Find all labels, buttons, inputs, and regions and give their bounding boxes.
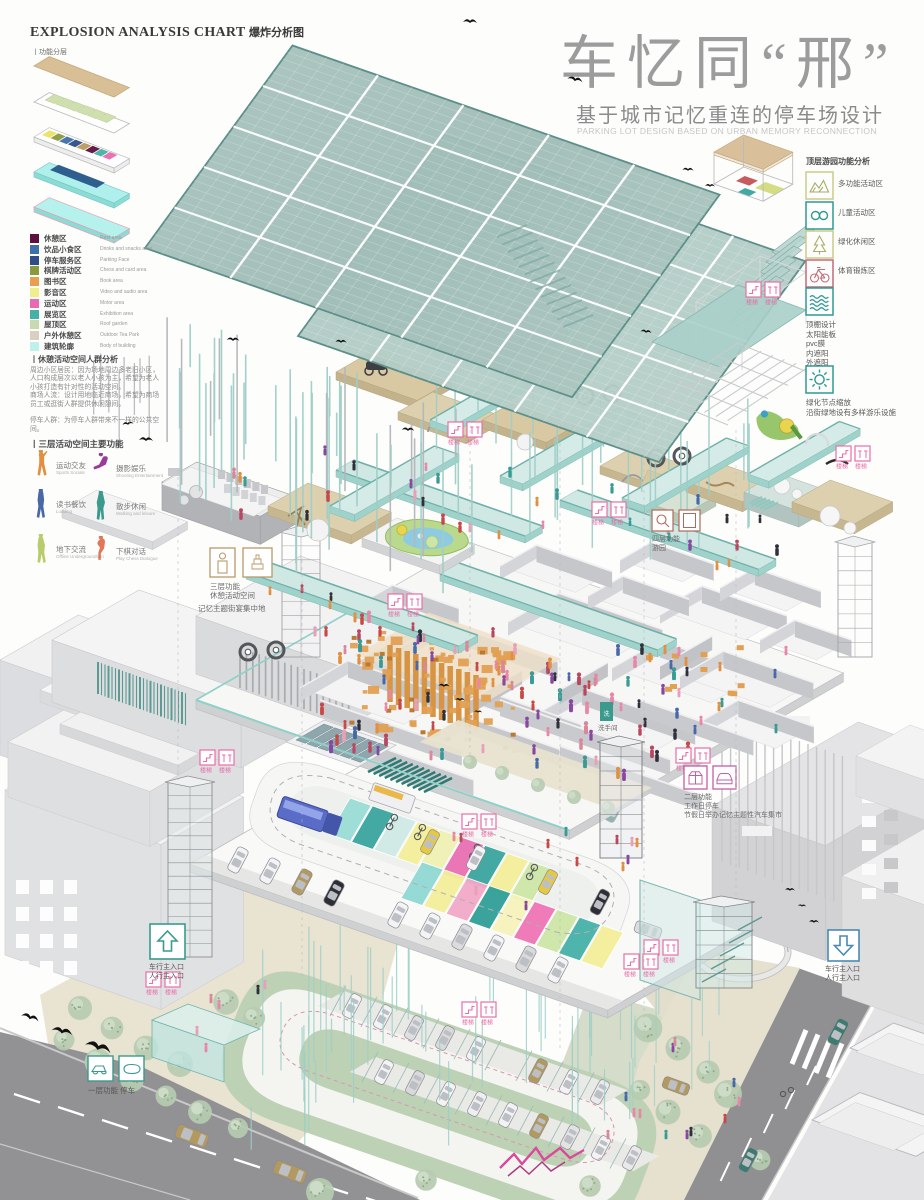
svg-text:楼梯: 楼梯: [200, 767, 212, 775]
svg-text:楼梯: 楼梯: [462, 1019, 474, 1027]
svg-text:楼梯: 楼梯: [855, 463, 867, 471]
svg-text:洗手间: 洗手间: [598, 723, 618, 732]
svg-text:二层功能: 二层功能: [684, 792, 712, 801]
svg-text:三层功能: 三层功能: [210, 581, 240, 591]
svg-text:楼梯: 楼梯: [663, 957, 675, 965]
svg-text:工作日停车: 工作日停车: [684, 801, 719, 810]
svg-text:人行主入口: 人行主入口: [149, 971, 184, 980]
svg-text:楼梯: 楼梯: [836, 463, 848, 471]
svg-text:楼梯: 楼梯: [165, 989, 177, 997]
svg-text:楼梯: 楼梯: [765, 299, 777, 307]
svg-text:游园: 游园: [652, 543, 666, 552]
svg-text:洗: 洗: [603, 710, 609, 718]
svg-text:楼梯: 楼梯: [467, 439, 479, 447]
svg-text:四层功能: 四层功能: [652, 534, 680, 543]
svg-text:休憩活动空间: 休憩活动空间: [210, 590, 255, 600]
svg-text:楼梯: 楼梯: [462, 831, 474, 839]
svg-text:楼梯: 楼梯: [481, 831, 493, 839]
svg-text:车行主入口: 车行主入口: [149, 962, 184, 971]
svg-text:节假日举办记忆主题性汽车集市: 节假日举办记忆主题性汽车集市: [684, 810, 782, 819]
svg-text:一层功能 停车: 一层功能 停车: [88, 1085, 136, 1095]
svg-text:楼梯: 楼梯: [219, 767, 231, 775]
svg-text:楼梯: 楼梯: [746, 299, 758, 307]
svg-text:楼梯: 楼梯: [407, 611, 419, 619]
svg-text:楼梯: 楼梯: [624, 971, 636, 979]
svg-text:楼梯: 楼梯: [592, 519, 604, 527]
svg-text:楼梯: 楼梯: [448, 439, 460, 447]
svg-text:记忆主题街宴集中地: 记忆主题街宴集中地: [198, 603, 266, 613]
svg-text:楼梯: 楼梯: [388, 611, 400, 619]
svg-text:楼梯: 楼梯: [481, 1019, 493, 1027]
svg-text:楼梯: 楼梯: [611, 519, 623, 527]
svg-text:人行主入口: 人行主入口: [825, 973, 860, 982]
svg-text:车行主入口: 车行主入口: [825, 964, 860, 973]
svg-text:楼梯: 楼梯: [146, 989, 158, 997]
svg-text:楼梯: 楼梯: [643, 971, 655, 979]
